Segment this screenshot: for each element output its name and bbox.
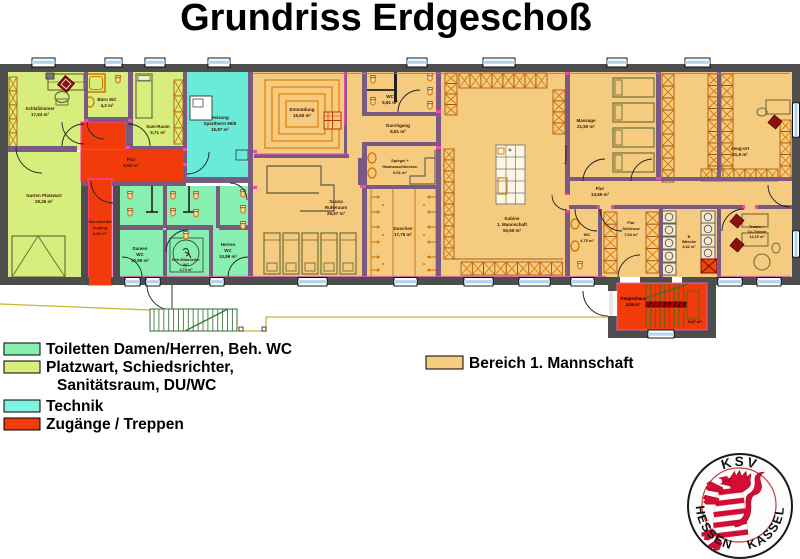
svg-text:Durchgang: Durchgang	[386, 123, 410, 128]
svg-text:Bereich 1. Mannschaft: Bereich 1. Mannschaft	[469, 355, 634, 372]
svg-text:21,50 m²: 21,50 m²	[577, 124, 596, 129]
svg-text:Haarwaschbecken: Haarwaschbecken	[383, 164, 418, 169]
svg-text:Herren: Herren	[221, 242, 236, 247]
svg-text:7,54 m²: 7,54 m²	[624, 232, 638, 237]
svg-text:Duschen: Duschen	[393, 226, 412, 231]
svg-text:Flur: Flur	[127, 157, 136, 162]
svg-text:4,2 m²: 4,2 m²	[100, 103, 114, 108]
svg-text:Spartherm 96/E: Spartherm 96/E	[203, 121, 236, 126]
svg-text:Garten Platzwart: Garten Platzwart	[26, 193, 62, 198]
svg-text:6,81 m²: 6,81 m²	[382, 100, 398, 105]
svg-text:WC: WC	[136, 252, 144, 257]
svg-text:17,75 m²: 17,75 m²	[394, 232, 413, 237]
svg-text:29,26 m²: 29,26 m²	[35, 199, 54, 204]
svg-text:4,75 m²: 4,75 m²	[580, 238, 594, 243]
svg-text:Spiegel +: Spiegel +	[391, 158, 409, 163]
svg-text:B: B	[688, 235, 691, 239]
svg-text:Kabine: Kabine	[504, 216, 520, 221]
svg-text:Sanitätsraum, DU/WC: Sanitätsraum, DU/WC	[57, 377, 216, 394]
svg-text:Flur: Flur	[627, 220, 635, 225]
svg-text:Ruheraum: Ruheraum	[325, 205, 347, 210]
svg-text:50,50 m²: 50,50 m²	[503, 228, 522, 233]
svg-text:Entmüdung: Entmüdung	[290, 107, 315, 112]
svg-text:4,73 m²: 4,73 m²	[179, 268, 193, 272]
svg-text:Massage: Massage	[576, 118, 596, 123]
svg-text:Zugänge / Treppen: Zugänge / Treppen	[46, 416, 184, 433]
svg-text:4,86 m²: 4,86 m²	[626, 302, 641, 307]
svg-text:Wäsche: Wäsche	[682, 240, 696, 244]
svg-text:8,62 m²: 8,62 m²	[682, 245, 696, 249]
svg-text:Beh.Mitarbeiter: Beh.Mitarbeiter	[172, 258, 200, 262]
svg-text:Büro WC: Büro WC	[97, 97, 117, 102]
svg-text:26,57 m²: 26,57 m²	[327, 211, 346, 216]
svg-text:10,89 m²: 10,89 m²	[131, 258, 150, 263]
svg-text:17,63 m²: 17,63 m²	[31, 112, 50, 117]
svg-text:Heizung: Heizung	[211, 115, 229, 120]
svg-text:15,97 m²: 15,97 m²	[211, 127, 230, 132]
svg-text:Zugang: Zugang	[93, 225, 108, 230]
svg-text:Schleuse: Schleuse	[622, 226, 640, 231]
svg-text:1. Mannschaft: 1. Mannschaft	[497, 222, 528, 227]
svg-text:Sauna: Sauna	[329, 199, 343, 204]
svg-text:6,91 m²: 6,91 m²	[393, 170, 407, 175]
svg-text:Schlafzimmer: Schlafzimmer	[25, 106, 55, 111]
svg-text:9,87 m²: 9,87 m²	[688, 319, 702, 324]
svg-text:15,60 m²: 15,60 m²	[293, 113, 312, 118]
svg-text:13,69 m²: 13,69 m²	[591, 192, 610, 197]
svg-text:10,89 m²: 10,89 m²	[219, 254, 238, 259]
svg-text:Platzwart, Schiedsrichter,: Platzwart, Schiedsrichter,	[46, 359, 234, 376]
svg-text:14,15 m²: 14,15 m²	[749, 235, 765, 239]
svg-text:9,71 m²: 9,71 m²	[150, 130, 166, 135]
svg-text:8,81 m²: 8,81 m²	[390, 129, 406, 134]
svg-text:Damen: Damen	[132, 246, 147, 251]
svg-text:9,56 m²: 9,56 m²	[123, 163, 139, 168]
svg-text:WC: WC	[584, 232, 591, 237]
svg-text:Flur: Flur	[596, 186, 605, 191]
svg-text:WC: WC	[386, 94, 394, 99]
svg-text:WC: WC	[183, 263, 190, 267]
svg-text:WC: WC	[224, 248, 232, 253]
svg-text:Treppenhaus: Treppenhaus	[620, 296, 647, 301]
svg-text:31,9 m²: 31,9 m²	[732, 152, 748, 157]
svg-text:Überdachter: Überdachter	[88, 219, 112, 224]
svg-text:Toiletten Damen/Herren, Beh. W: Toiletten Damen/Herren, Beh. WC	[46, 341, 292, 358]
svg-text:Trennwand: Trennwand	[564, 146, 568, 165]
svg-text:9,96 m²: 9,96 m²	[93, 231, 107, 236]
svg-text:Grundriss Erdgeschoß: Grundriss Erdgeschoß	[180, 0, 592, 39]
svg-text:Co-Trainer: Co-Trainer	[748, 230, 768, 234]
svg-text:Trainer +: Trainer +	[749, 225, 766, 229]
svg-text:Sani-Raum: Sani-Raum	[146, 124, 170, 129]
svg-text:Zeug-ort: Zeug-ort	[731, 146, 750, 151]
svg-text:Technik: Technik	[46, 398, 104, 415]
